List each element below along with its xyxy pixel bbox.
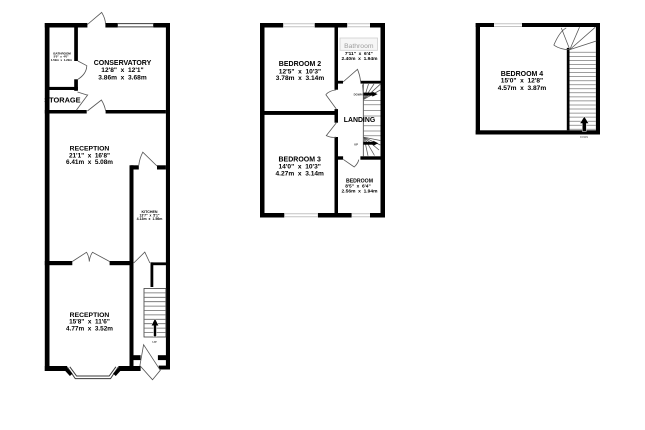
svg-text:BEDROOM 2: BEDROOM 2 bbox=[279, 61, 322, 68]
svg-text:4.57m x 3.87m: 4.57m x 3.87m bbox=[498, 85, 547, 92]
svg-text:3.78m x 3.14m: 3.78m x 3.14m bbox=[276, 75, 325, 82]
svg-text:STORAGE: STORAGE bbox=[44, 96, 80, 105]
svg-text:RECEPTION: RECEPTION bbox=[70, 146, 110, 153]
svg-text:3.86m x 3.68m: 3.86m x 3.68m bbox=[98, 75, 147, 82]
svg-text:12'8" x 12'1": 12'8" x 12'1" bbox=[101, 67, 143, 74]
svg-text:UP: UP bbox=[152, 340, 156, 344]
svg-text:14'0" x 10'3": 14'0" x 10'3" bbox=[279, 163, 321, 170]
svg-text:6.41m x 5.08m: 6.41m x 5.08m bbox=[66, 159, 113, 166]
svg-text:2.56m x 1.94m: 2.56m x 1.94m bbox=[342, 188, 379, 194]
svg-text:4.27m x 3.14m: 4.27m x 3.14m bbox=[276, 170, 325, 177]
svg-text:LANDING: LANDING bbox=[344, 117, 375, 124]
svg-text:DOWN: DOWN bbox=[580, 135, 588, 139]
svg-text:4.13m x 1.56m: 4.13m x 1.56m bbox=[137, 217, 163, 221]
svg-text:1.52m x 1.22m: 1.52m x 1.22m bbox=[51, 58, 73, 62]
svg-text:UP: UP bbox=[354, 142, 358, 146]
svg-text:Bathroom: Bathroom bbox=[344, 43, 374, 50]
svg-text:CONSERVATORY: CONSERVATORY bbox=[94, 60, 152, 67]
svg-text:4.77m x 3.52m: 4.77m x 3.52m bbox=[66, 326, 113, 333]
svg-text:15'0" x 12'8": 15'0" x 12'8" bbox=[501, 78, 543, 85]
svg-text:2.40m x 1.94m: 2.40m x 1.94m bbox=[342, 56, 379, 62]
svg-text:DOWN: DOWN bbox=[354, 92, 363, 96]
svg-text:15'8" x 11'6": 15'8" x 11'6" bbox=[69, 319, 110, 326]
